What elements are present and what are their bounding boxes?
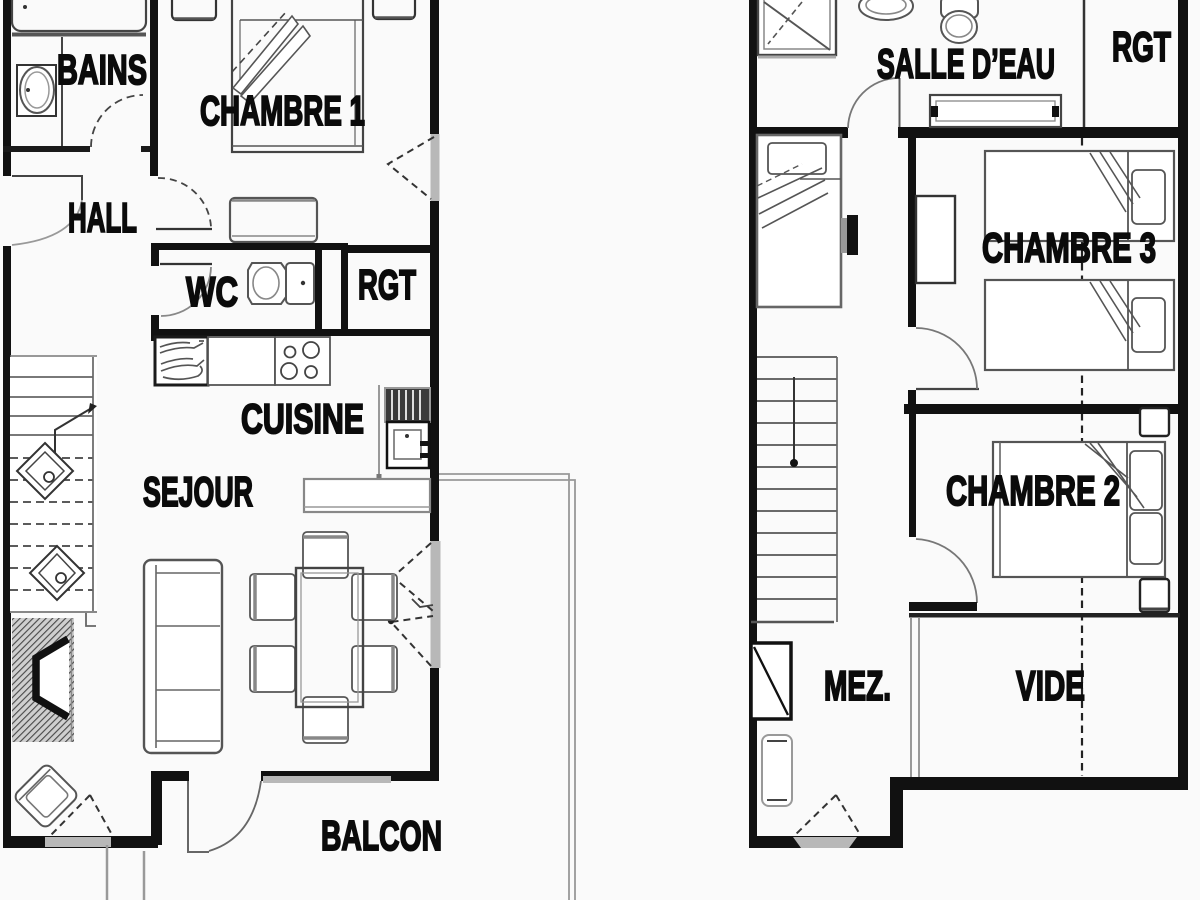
svg-text:CHAMBRE 3: CHAMBRE 3 xyxy=(982,224,1156,271)
svg-text:SALLE D’EAU: SALLE D’EAU xyxy=(877,40,1055,87)
svg-text:RGT: RGT xyxy=(358,261,416,308)
svg-text:BALCON: BALCON xyxy=(321,812,442,859)
svg-text:CUISINE: CUISINE xyxy=(241,395,364,442)
svg-text:RGT: RGT xyxy=(1112,23,1171,70)
svg-text:SEJOUR: SEJOUR xyxy=(143,468,253,515)
svg-text:HALL: HALL xyxy=(68,194,137,241)
svg-text:VIDE: VIDE xyxy=(1016,662,1085,709)
svg-text:MEZ.: MEZ. xyxy=(824,662,891,709)
svg-text:CHAMBRE 1: CHAMBRE 1 xyxy=(200,87,365,134)
svg-text:BAINS: BAINS xyxy=(57,46,147,93)
svg-text:CHAMBRE 2: CHAMBRE 2 xyxy=(946,467,1120,514)
svg-text:WC: WC xyxy=(186,268,238,315)
